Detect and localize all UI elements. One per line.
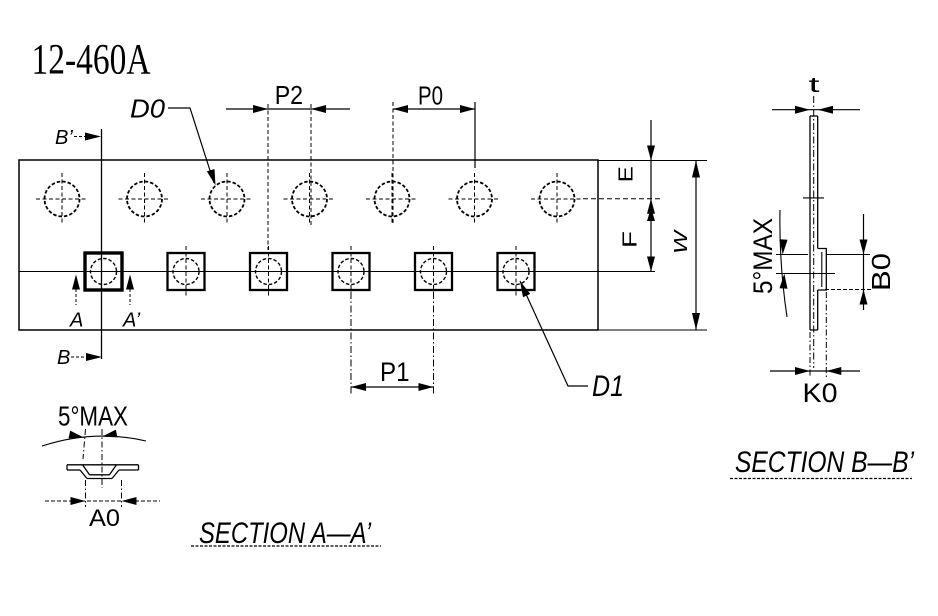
svg-text:t: t xyxy=(809,74,820,97)
svg-text:B: B xyxy=(57,347,70,369)
svg-text:SECTION B—B’: SECTION B—B’ xyxy=(735,446,915,479)
svg-text:A0: A0 xyxy=(89,505,120,532)
svg-text:12-460A: 12-460A xyxy=(32,37,151,84)
svg-text:5°MAX: 5°MAX xyxy=(748,218,778,294)
svg-text:K0: K0 xyxy=(803,378,838,408)
svg-text:P2: P2 xyxy=(275,80,303,110)
svg-text:D0: D0 xyxy=(130,94,166,124)
svg-text:D1: D1 xyxy=(592,370,624,403)
svg-text:W: W xyxy=(671,228,691,254)
svg-text:P1: P1 xyxy=(380,357,410,387)
svg-text:5°MAX: 5°MAX xyxy=(58,401,128,432)
svg-text:B0: B0 xyxy=(866,253,896,291)
svg-text:F: F xyxy=(620,231,642,248)
svg-text:B’: B’ xyxy=(55,127,73,149)
svg-text:E: E xyxy=(616,166,638,182)
svg-text:A’: A’ xyxy=(122,310,141,332)
svg-text:P0: P0 xyxy=(418,81,443,111)
svg-text:A: A xyxy=(69,310,83,332)
svg-text:SECTION A—A’: SECTION A—A’ xyxy=(199,517,372,550)
